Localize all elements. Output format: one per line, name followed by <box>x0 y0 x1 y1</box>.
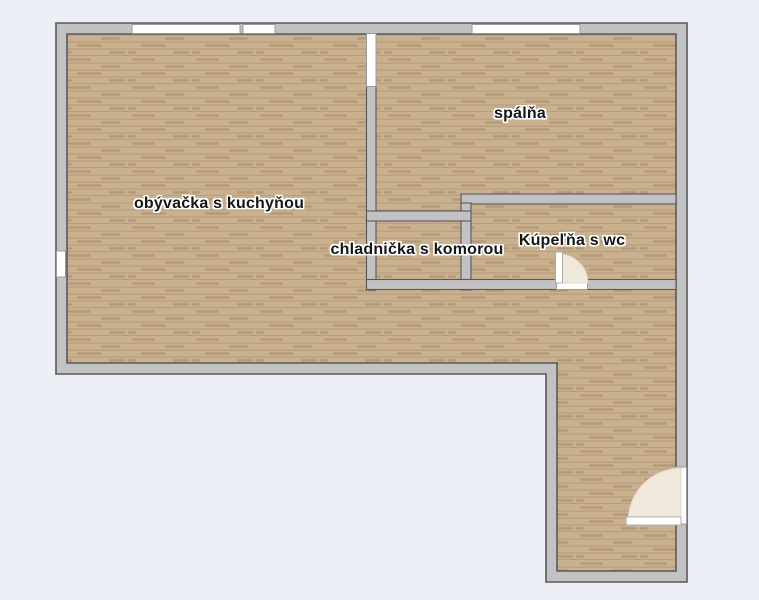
window-top-living-large <box>132 25 240 34</box>
room-label-bedroom: spálňa <box>494 105 546 123</box>
floor-plan-svg <box>0 0 759 600</box>
bathroom-door-leaf <box>556 252 563 283</box>
wall-bedroom-pantry <box>367 211 472 221</box>
room-label-bathroom: Kúpeľňa s wc <box>519 232 625 250</box>
room-label-living-kitchen: obývačka s kuchyňou <box>134 195 304 213</box>
room-label-pantry: chladnička s komorou <box>331 241 504 259</box>
wall-bedroom-bathroom <box>461 194 676 204</box>
window-top-living-small <box>243 25 275 34</box>
wall-corridor-south <box>367 280 677 290</box>
window-left-living <box>57 251 66 277</box>
floor-plan-canvas: obývačka s kuchyňou spálňa chladnička s … <box>0 0 759 600</box>
wall-living-bedroom <box>367 86 377 290</box>
opening-living-bedroom <box>367 34 377 87</box>
entrance-door-leaf <box>626 517 681 525</box>
window-top-bedroom <box>472 25 580 34</box>
